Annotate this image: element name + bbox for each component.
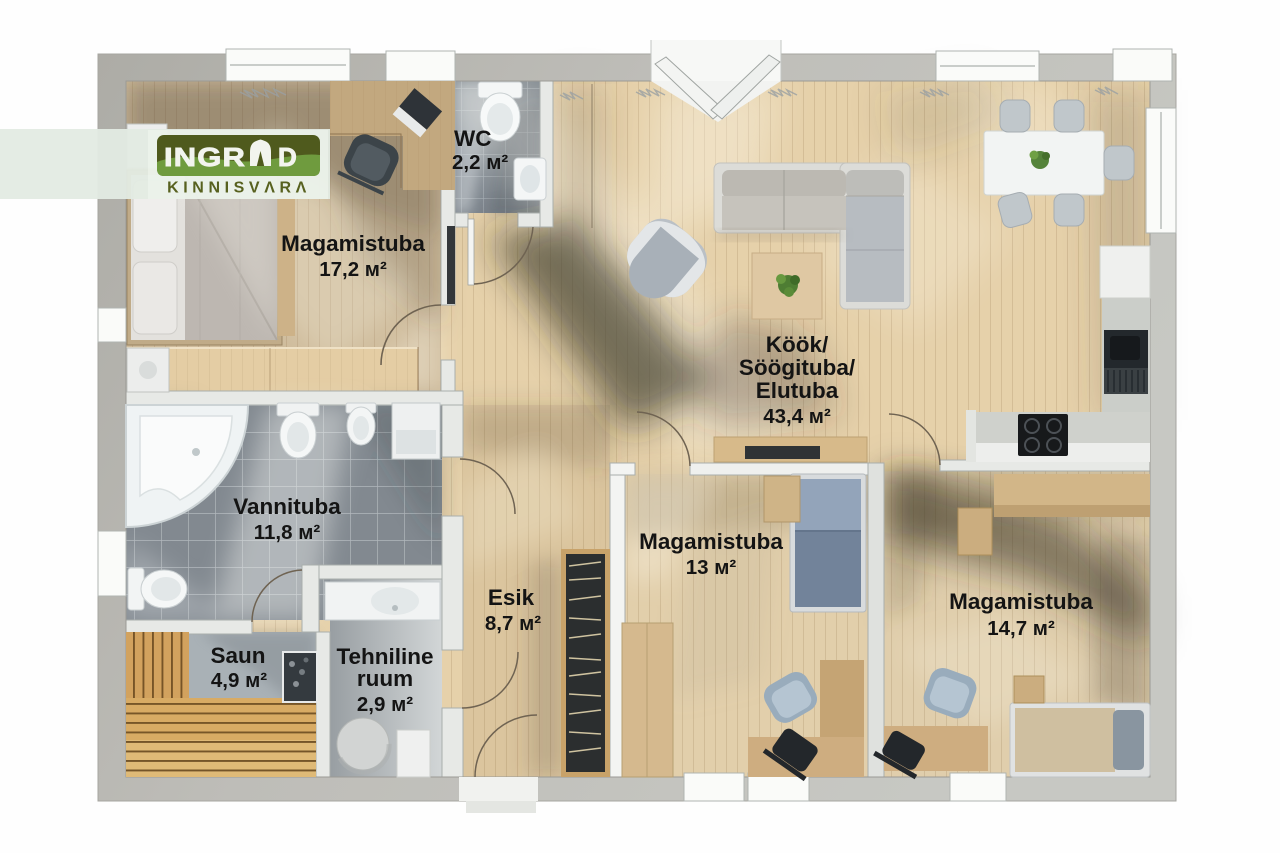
svg-text:Vannituba: Vannituba [233, 494, 341, 519]
svg-text:Söögituba/: Söögituba/ [739, 355, 856, 380]
svg-text:D: D [278, 142, 297, 172]
svg-text:11,8 м²: 11,8 м² [254, 521, 321, 544]
svg-text:Saun: Saun [210, 643, 265, 668]
svg-text:13 м²: 13 м² [686, 556, 737, 579]
svg-text:Magamistuba: Magamistuba [281, 231, 425, 256]
svg-text:17,2 м²: 17,2 м² [319, 258, 387, 281]
svg-text:WC: WC [454, 126, 492, 151]
svg-text:2,2 м²: 2,2 м² [452, 151, 508, 174]
svg-text:43,4 м²: 43,4 м² [763, 405, 831, 428]
svg-text:8,7 м²: 8,7 м² [485, 612, 541, 635]
svg-text:Magamistuba: Magamistuba [639, 529, 783, 554]
svg-text:ruum: ruum [357, 666, 413, 691]
svg-text:Elutuba: Elutuba [756, 378, 839, 403]
svg-text:Magamistuba: Magamistuba [949, 589, 1093, 614]
svg-text:Köök/: Köök/ [766, 332, 829, 357]
svg-text:Esik: Esik [488, 585, 535, 610]
svg-text:14,7 м²: 14,7 м² [987, 617, 1055, 640]
svg-text:4,9 м²: 4,9 м² [211, 669, 267, 692]
svg-text:INGR: INGR [164, 142, 246, 172]
svg-text:KINNISVΛRΛ: KINNISVΛRΛ [167, 180, 311, 197]
svg-text:2,9 м²: 2,9 м² [357, 693, 413, 716]
